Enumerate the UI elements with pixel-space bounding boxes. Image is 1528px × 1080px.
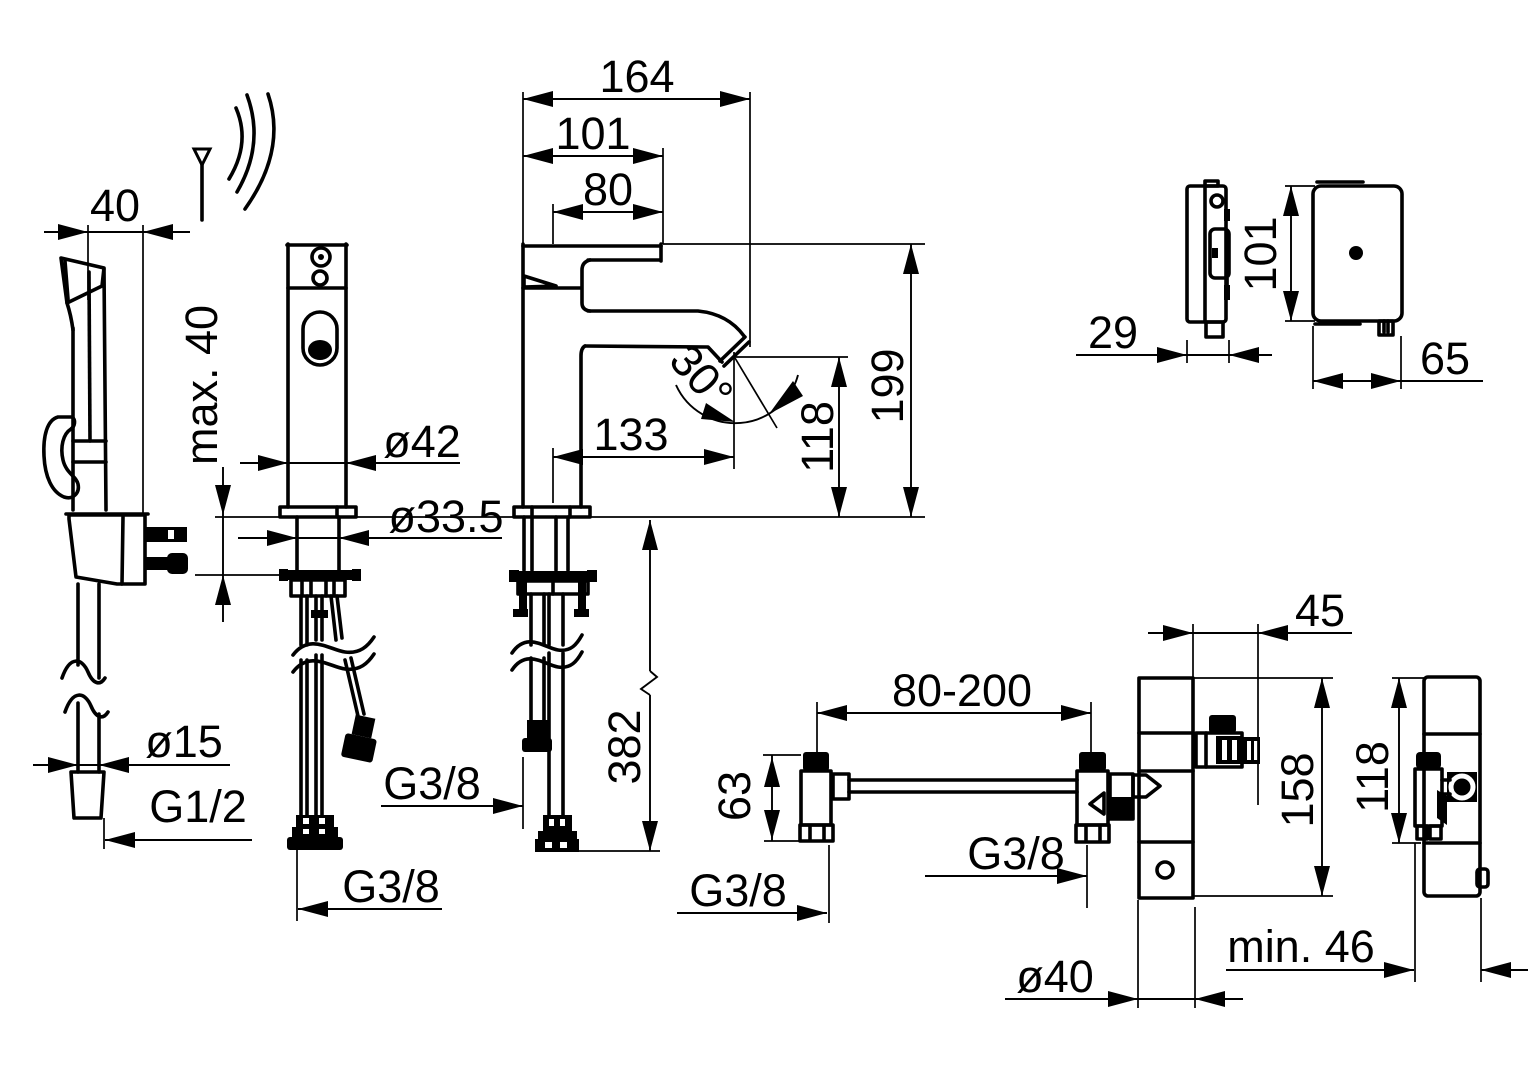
svg-text:G3/8: G3/8 <box>342 861 440 912</box>
svg-text:382: 382 <box>599 709 650 784</box>
svg-text:29: 29 <box>1088 307 1138 358</box>
svg-text:G3/8: G3/8 <box>383 758 481 809</box>
svg-text:80: 80 <box>583 164 633 215</box>
svg-text:118: 118 <box>1347 741 1398 813</box>
svg-text:158: 158 <box>1272 752 1323 827</box>
svg-text:80-200: 80-200 <box>892 665 1032 716</box>
svg-text:ø15: ø15 <box>145 716 223 767</box>
svg-text:G3/8: G3/8 <box>967 828 1065 879</box>
svg-text:118: 118 <box>792 401 843 473</box>
svg-text:ø42: ø42 <box>383 416 461 467</box>
svg-text:199: 199 <box>862 348 913 423</box>
svg-text:G1/2: G1/2 <box>149 781 247 832</box>
svg-text:101: 101 <box>1235 216 1286 291</box>
svg-text:ø40: ø40 <box>1016 951 1094 1002</box>
svg-text:164: 164 <box>599 51 674 102</box>
svg-text:min. 46: min. 46 <box>1227 921 1375 972</box>
svg-text:max. 40: max. 40 <box>176 305 227 465</box>
svg-text:63: 63 <box>709 771 760 821</box>
svg-text:40: 40 <box>90 180 140 231</box>
svg-text:133: 133 <box>593 409 668 460</box>
svg-text:45: 45 <box>1295 585 1345 636</box>
svg-text:65: 65 <box>1420 333 1470 384</box>
svg-text:G3/8: G3/8 <box>689 865 787 916</box>
svg-text:101: 101 <box>555 108 630 159</box>
